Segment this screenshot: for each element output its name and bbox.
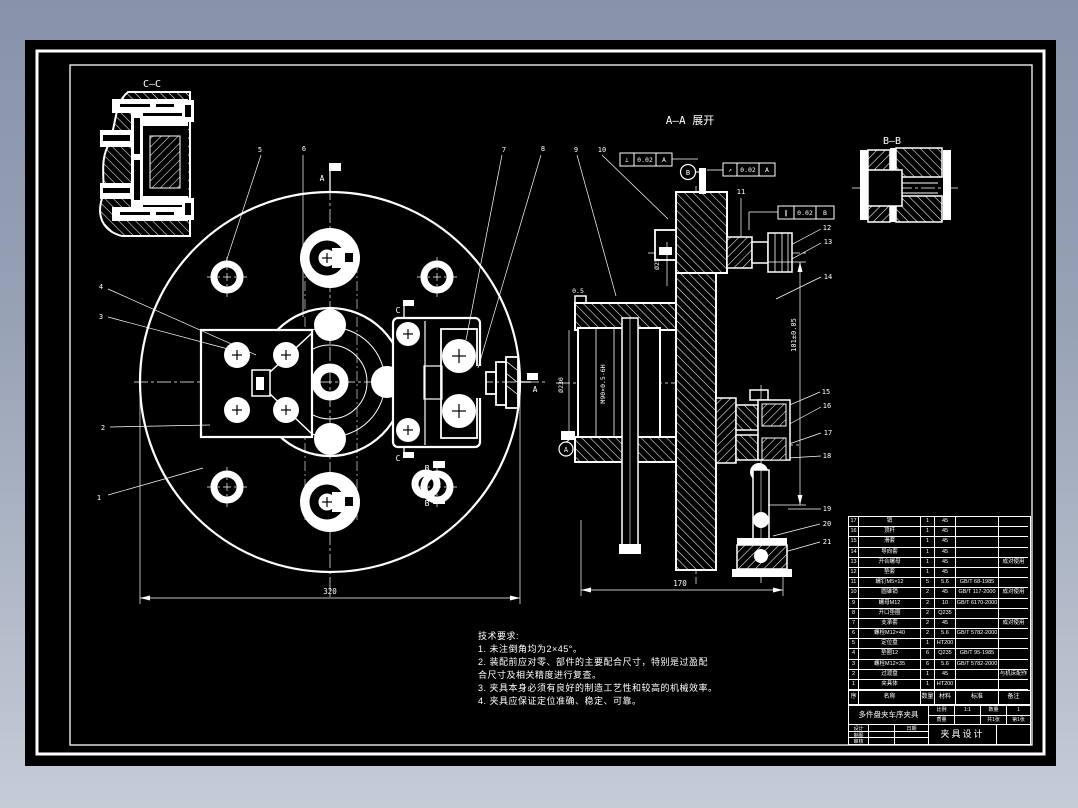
bom-cell-material: 45	[935, 670, 956, 680]
bom-cell-name: 销	[859, 517, 921, 527]
gdt1-tolerance: 0.02	[637, 156, 653, 164]
callout-11: 11	[737, 188, 745, 196]
designer-signature	[869, 725, 895, 732]
table-row: 10 圆锥销 2 45 GB/T 117-2000 成对使用	[849, 588, 1030, 598]
table-row: 16 顶杆 1 45	[849, 527, 1030, 537]
table-row: 6 螺栓M12×40 2 5.6 GB/T 5782-2000	[849, 629, 1030, 639]
bom-cell-standard: GB/T 68-1985	[956, 578, 999, 588]
bom-cell-standard	[956, 568, 999, 578]
bom-cell-qty: 2	[921, 599, 935, 609]
scale-value: 1:1	[955, 706, 981, 716]
datum-b-label: B	[686, 169, 690, 177]
bom-cell-remark: 成对使用	[999, 558, 1028, 568]
bom-cell-standard: GB/T 5782-2000	[956, 660, 999, 670]
bom-cell-standard	[956, 558, 999, 568]
bom-cell-name: 垫套	[859, 568, 921, 578]
bom-cell-standard	[956, 609, 999, 619]
workpiece-section	[578, 328, 660, 437]
bom-cell-name: 顶杆	[859, 527, 921, 537]
bom-cell-material: 45	[935, 537, 956, 547]
checker-label: 审核	[849, 738, 869, 744]
table-row: 2 过渡盘 1 45 与机床配作	[849, 670, 1030, 680]
title-block: 多件盘夹车序夹具 比例 1:1 数量 1 质量 共1张 第1张 设计 日期 制图…	[848, 705, 1031, 745]
gdt2-tolerance: 0.02	[740, 166, 756, 174]
bb-view-title: B—B	[883, 136, 901, 147]
sheets-total: 共1张	[981, 716, 1007, 726]
dim-od-230: Ø230	[557, 377, 565, 393]
callout-6: 6	[302, 145, 306, 153]
bom-cell-qty: 1	[921, 639, 935, 649]
bom-cell-qty: 2	[921, 629, 935, 639]
bom-cell-no: 1	[849, 680, 859, 690]
technical-notes: 技术要求: 1. 未注倒角均为2×45°。 2. 装配前应对零、部件的主要配合尺…	[478, 630, 768, 708]
table-row: 15 滑套 1 45	[849, 537, 1030, 547]
bom-cell-no: 15	[849, 537, 859, 547]
bom-cell-qty: 1	[921, 680, 935, 690]
bom-cell-name: 滑套	[859, 537, 921, 547]
top-slot-boss	[300, 228, 360, 288]
callout-4: 4	[99, 283, 103, 291]
bom-cell-material: HT200	[935, 639, 956, 649]
bom-cell-material: 45	[935, 568, 956, 578]
callout-20: 20	[823, 520, 831, 528]
callout-12: 12	[823, 224, 831, 232]
bom-cell-name: 支承套	[859, 619, 921, 629]
bom-cell-qty: 1	[921, 527, 935, 537]
bom-cell-remark	[999, 680, 1028, 690]
gdt3-tolerance: 0.02	[797, 209, 813, 217]
note-line: 合尺寸及相关精度进行复查。	[478, 669, 768, 682]
bom-cell-name: 开合螺母	[859, 558, 921, 568]
bom-header-qty: 数量	[921, 691, 935, 704]
parts-list-table: 17 销 1 45 16 顶杆 1 45 15 滑套 1 45 14 导向套 1…	[848, 516, 1031, 691]
bom-cell-qty: 2	[921, 588, 935, 598]
bom-cell-name: 定位盘	[859, 639, 921, 649]
bom-cell-remark	[999, 649, 1028, 659]
bom-cell-qty: 1	[921, 568, 935, 578]
bom-cell-qty: 1	[921, 558, 935, 568]
c-flag-bottom-label: C	[396, 454, 401, 463]
bom-cell-remark: 与机床配作	[999, 670, 1028, 680]
drafter-date	[895, 732, 929, 739]
bom-cell-qty: 2	[921, 619, 935, 629]
designer-label: 设计	[849, 725, 869, 732]
bom-cell-remark	[999, 609, 1028, 619]
bom-cell-standard	[956, 537, 999, 547]
note-line: 2. 装配前应对零、部件的主要配合尺寸，特别是过盈配	[478, 656, 768, 669]
bom-cell-remark	[999, 527, 1028, 537]
bom-cell-material: HT200	[935, 680, 956, 690]
drafter-label: 制图	[849, 732, 869, 739]
dim-170: 170	[673, 579, 687, 588]
bom-cell-no: 16	[849, 527, 859, 537]
bom-cell-no: 7	[849, 619, 859, 629]
callout-10: 10	[598, 146, 606, 154]
parts-list-header: 序号 名称 数量 材料 标准 备注	[848, 690, 1031, 705]
callout-19: 19	[823, 505, 831, 513]
bom-cell-name: 过渡盘	[859, 670, 921, 680]
bom-cell-standard	[956, 619, 999, 629]
dim-320: 320	[323, 587, 337, 596]
bom-header-material: 材料	[935, 691, 956, 704]
a-flag-right-label: A	[533, 385, 538, 394]
bom-cell-qty: 1	[921, 537, 935, 547]
qty-value: 1	[1007, 706, 1030, 716]
bom-cell-no: 2	[849, 670, 859, 680]
table-row: 7 支承套 2 45 成对使用	[849, 619, 1030, 629]
bom-cell-material: 5.6	[935, 660, 956, 670]
bom-cell-no: 13	[849, 558, 859, 568]
bom-cell-material: 45	[935, 517, 956, 527]
bom-cell-qty: 2	[921, 609, 935, 619]
bom-cell-name: 螺钉M5×12	[859, 578, 921, 588]
bom-cell-material: 45	[935, 558, 956, 568]
table-row: 3 螺栓M12×35 6 5.6 GB/T 5782-2000	[849, 660, 1030, 670]
bom-cell-remark	[999, 568, 1028, 578]
bom-header-name: 名称	[859, 691, 921, 704]
bom-header-standard: 标准	[956, 691, 999, 704]
callout-18: 18	[823, 452, 831, 460]
bom-cell-no: 17	[849, 517, 859, 527]
bom-cell-standard: GB/T 6170-2000	[956, 599, 999, 609]
mass-value	[955, 716, 981, 726]
callout-9: 9	[574, 146, 578, 154]
bom-cell-standard	[956, 670, 999, 680]
cc-view-title: C—C	[143, 79, 161, 90]
callout-7: 7	[502, 146, 506, 154]
bom-cell-remark	[999, 578, 1028, 588]
bom-cell-material: Q235	[935, 649, 956, 659]
table-row: 5 定位盘 1 HT200	[849, 639, 1030, 649]
bom-cell-remark	[999, 537, 1028, 547]
bom-cell-name: 螺栓M12×35	[859, 660, 921, 670]
dim-101: 101±0.05	[790, 318, 798, 352]
bom-cell-qty: 1	[921, 517, 935, 527]
bom-cell-material: 45	[935, 588, 956, 598]
gdt3-symbol: ∥	[784, 209, 787, 217]
bom-cell-material: 45	[935, 619, 956, 629]
gdt2-symbol: ↗	[728, 166, 732, 174]
bom-cell-material: 45	[935, 548, 956, 558]
bom-cell-remark: 成对使用	[999, 588, 1028, 598]
c-flag-top-label: C	[396, 306, 401, 315]
note-line: 4. 夹具应保证定位准确、稳定、可靠。	[478, 695, 768, 708]
callout-17: 17	[824, 429, 832, 437]
qty-label: 数量	[981, 706, 1007, 716]
bom-cell-standard	[956, 548, 999, 558]
bom-cell-standard	[956, 680, 999, 690]
table-row: 14 导向套 1 45	[849, 548, 1030, 558]
bom-cell-remark	[999, 629, 1028, 639]
bom-cell-remark	[999, 660, 1028, 670]
table-row: 4 垫圈12 6 Q235 GB/T 95-1985	[849, 649, 1030, 659]
callout-3: 3	[99, 313, 103, 321]
bom-cell-material: Q235	[935, 609, 956, 619]
bom-cell-name: 螺母M12	[859, 599, 921, 609]
callout-8: 8	[541, 145, 545, 153]
bom-cell-no: 5	[849, 639, 859, 649]
callout-5: 5	[258, 146, 262, 154]
table-row: 17 销 1 45	[849, 517, 1030, 527]
bom-cell-no: 9	[849, 599, 859, 609]
bom-cell-material: 45	[935, 527, 956, 537]
bom-cell-name: 螺栓M12×40	[859, 629, 921, 639]
bom-cell-standard: GB/T 95-1985	[956, 649, 999, 659]
dim-chamfer: 0.5	[572, 287, 584, 295]
table-row: 12 垫套 1 45	[849, 568, 1030, 578]
bom-cell-no: 10	[849, 588, 859, 598]
bom-cell-remark	[999, 517, 1028, 527]
bom-cell-qty: 5	[921, 578, 935, 588]
callout-14: 14	[824, 273, 832, 281]
bom-header-remark: 备注	[999, 691, 1028, 704]
bom-cell-name: 开口垫圈	[859, 609, 921, 619]
dim-thread: M90×0.5-6H	[599, 364, 607, 403]
bom-cell-remark	[999, 548, 1028, 558]
date-label: 日期	[895, 725, 929, 732]
drawing-title: 夹具设计	[929, 725, 997, 744]
aa-view-title: A—A 展开	[666, 114, 715, 127]
gdt1-datum: A	[662, 156, 666, 164]
callout-2: 2	[101, 424, 105, 432]
a-flag-top-label: A	[320, 174, 325, 183]
drafter-signature	[869, 732, 895, 739]
gdt3-datum: B	[823, 209, 827, 217]
bom-cell-no: 12	[849, 568, 859, 578]
scale-label: 比例	[929, 706, 955, 716]
bom-cell-material: 5.6	[935, 578, 956, 588]
callout-16: 16	[823, 402, 831, 410]
note-line: 1. 未注倒角均为2×45°。	[478, 643, 768, 656]
bom-cell-standard	[956, 517, 999, 527]
bom-cell-remark	[999, 599, 1028, 609]
bom-cell-name: 圆锥销	[859, 588, 921, 598]
table-row: 1 夹具体 1 HT200	[849, 680, 1030, 690]
bom-cell-remark: 成对使用	[999, 619, 1028, 629]
bom-cell-no: 4	[849, 649, 859, 659]
bom-cell-name: 垫圈12	[859, 649, 921, 659]
mass-label: 质量	[929, 716, 955, 726]
sheet-number: 第1张	[1007, 716, 1030, 726]
bom-cell-no: 8	[849, 609, 859, 619]
cad-drawing-page: C—C	[0, 0, 1078, 808]
callout-1: 1	[97, 494, 101, 502]
bom-cell-no: 14	[849, 548, 859, 558]
bom-cell-no: 11	[849, 578, 859, 588]
bom-cell-qty: 1	[921, 548, 935, 558]
note-line: 3. 夹具本身必须有良好的制造工艺性和较高的机械效率。	[478, 682, 768, 695]
bom-cell-standard: GB/T 5782-2000	[956, 629, 999, 639]
checker-signature	[869, 738, 895, 744]
bom-cell-qty: 1	[921, 670, 935, 680]
table-row: 9 螺母M12 2 10 GB/T 6170-2000	[849, 599, 1030, 609]
bom-cell-no: 3	[849, 660, 859, 670]
table-row: 11 螺钉M5×12 5 5.6 GB/T 68-1985	[849, 578, 1030, 588]
bom-cell-material: 10	[935, 599, 956, 609]
bom-cell-standard	[956, 527, 999, 537]
callout-13: 13	[824, 238, 832, 246]
bom-cell-standard: GB/T 117-2000	[956, 588, 999, 598]
bom-cell-standard	[956, 639, 999, 649]
table-row: 13 开合螺母 1 45 成对使用	[849, 558, 1030, 568]
bottom-slot-boss	[300, 472, 360, 532]
bom-cell-no: 6	[849, 629, 859, 639]
table-row: 8 开口垫圈 2 Q235	[849, 609, 1030, 619]
bom-header-no: 序号	[849, 691, 859, 704]
dim-bore-25: Ø25	[653, 258, 661, 270]
callout-15: 15	[822, 388, 830, 396]
drawing-number-cell	[997, 725, 1030, 744]
gdt2-datum: A	[765, 166, 769, 174]
bom-cell-remark	[999, 639, 1028, 649]
callout-21: 21	[823, 538, 831, 546]
gdt1-symbol: ⊥	[625, 156, 629, 164]
checker-date	[895, 738, 929, 744]
b-flag-top-label: B	[425, 464, 430, 473]
notes-title: 技术要求:	[478, 630, 768, 643]
bom-cell-material: 5.6	[935, 629, 956, 639]
b-flag-bottom-label: B	[425, 499, 430, 508]
bom-cell-name: 夹具体	[859, 680, 921, 690]
bom-cell-qty: 6	[921, 649, 935, 659]
bom-cell-qty: 6	[921, 660, 935, 670]
bom-cell-name: 导向套	[859, 548, 921, 558]
product-name: 多件盘夹车序夹具	[849, 706, 929, 725]
